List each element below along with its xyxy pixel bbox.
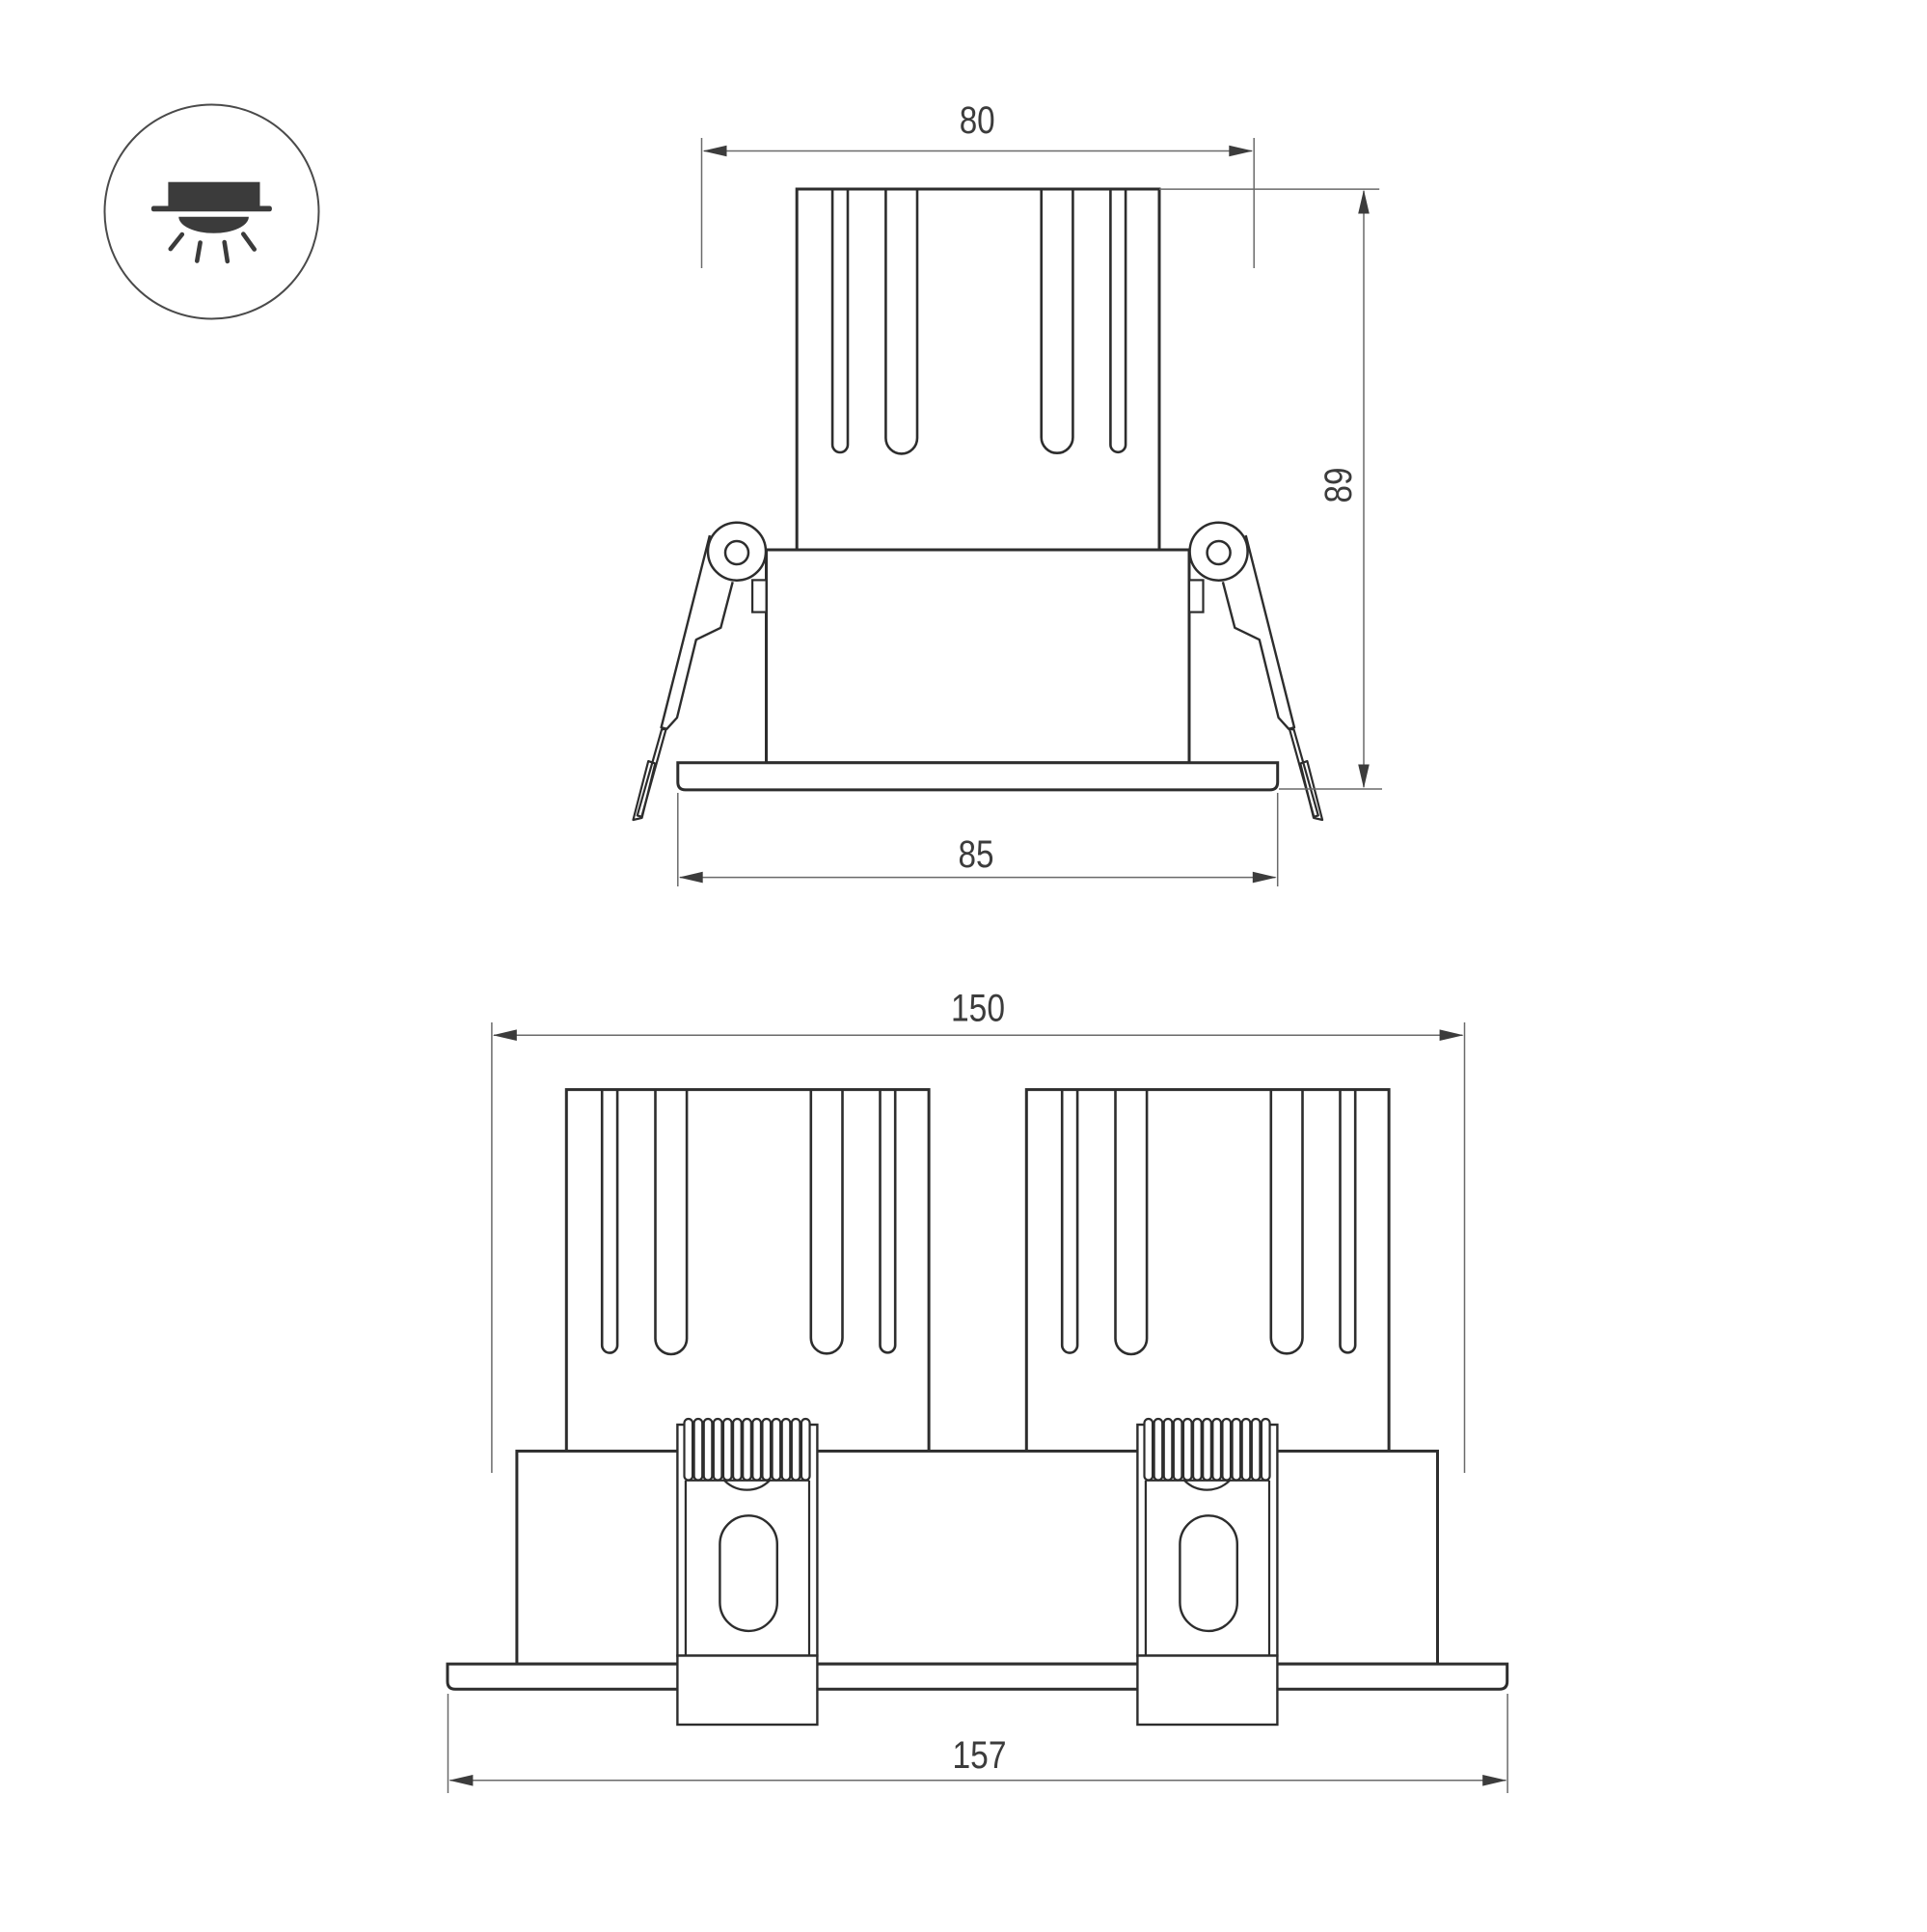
svg-text:150: 150 [951, 988, 1005, 1030]
svg-text:157: 157 [953, 1734, 1007, 1777]
svg-text:85: 85 [959, 833, 994, 876]
svg-text:89: 89 [1317, 468, 1360, 503]
svg-text:80: 80 [960, 99, 995, 142]
